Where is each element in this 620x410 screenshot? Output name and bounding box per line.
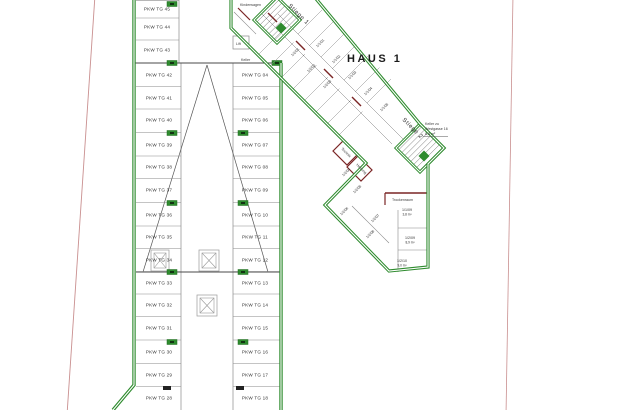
parking-stall-label: PKW TG 39 [146, 143, 172, 148]
parking-stall-label: PKW TG 12 [242, 258, 268, 263]
room-area-label: 3,8 m² [402, 212, 411, 216]
pillar-marker-core [241, 271, 245, 273]
kinderwagen-label: Kinderwagen [240, 3, 261, 7]
boundary-line-right [506, 0, 513, 410]
pillar-marker-dark [236, 386, 244, 390]
keller-label: Keller [241, 58, 251, 62]
pillar-marker-core [170, 271, 174, 273]
pillar-marker-core [241, 132, 245, 134]
parking-stall-label: PKW TG 43 [144, 48, 170, 53]
parking-stall-label: PKW TG 37 [146, 188, 172, 193]
keller-note-line3: 8,8 m² [425, 132, 436, 136]
parking-stall-label: PKW TG 31 [146, 326, 172, 331]
parking-stall-label: PKW TG 16 [242, 350, 268, 355]
room-label: 1/2/10 [397, 259, 407, 263]
room-area-label: 9,0 m² [397, 263, 406, 267]
pillar-marker-core [241, 202, 245, 204]
parking-stall-label: PKW TG 29 [146, 373, 172, 378]
parking-stall-label: PKW TG 38 [146, 165, 172, 170]
parking-stall-label: PKW TG 04 [242, 73, 268, 78]
room-label: 1/2/09 [405, 236, 415, 240]
room-label: 1/1/09 [402, 208, 412, 212]
plan-canvas: PKW TG 45PKW TG 44PKW TG 43PKW TG 42PKW … [0, 0, 620, 410]
pillar-marker-dark [163, 386, 171, 390]
parking-stall-label: PKW TG 17 [242, 373, 268, 378]
garage-wall-core [113, 0, 134, 410]
pillar-marker-core [275, 62, 279, 64]
parking-stall-label: PKW TG 18 [242, 396, 268, 401]
parking-stall-label: PKW TG 41 [146, 96, 172, 101]
parking-stall-label: PKW TG 32 [146, 303, 172, 308]
parking-stall-label: PKW TG 45 [144, 7, 170, 12]
parking-stall-label: PKW TG 08 [242, 165, 268, 170]
parking-stall-label: PKW TG 15 [242, 326, 268, 331]
pillar-marker-core [241, 341, 245, 343]
building-title: HAUS 1 [347, 53, 402, 65]
parking-stall-label: PKW TG 14 [242, 303, 268, 308]
pillar-marker-core [170, 62, 174, 64]
pillar-marker-core [170, 341, 174, 343]
parking-stall-label: PKW TG 30 [146, 350, 172, 355]
parking-stall-label: PKW TG 28 [146, 396, 172, 401]
trockenraum-label: Trockenraum [392, 198, 413, 202]
room-label: 1/2/04 [341, 167, 351, 177]
parking-stall-label: PKW TG 40 [146, 118, 172, 123]
parking-stall-label: PKW TG 36 [146, 213, 172, 218]
parking-stall-label: PKW TG 07 [242, 143, 268, 148]
room-area-label: 8,9 m² [405, 240, 414, 244]
keller-note-line1: Keller zu [425, 122, 439, 126]
garage-wall [113, 0, 134, 410]
parking-stall-label: PKW TG 13 [242, 281, 268, 286]
boundary-line-left [67, 0, 95, 410]
pillar-marker-core [170, 3, 174, 5]
parking-stall-label: PKW TG 44 [144, 25, 170, 30]
parking-stall-label: PKW TG 10 [242, 213, 268, 218]
keller-note-line2: Westgasse 16 [425, 127, 448, 131]
floor-plan: PKW TG 45PKW TG 44PKW TG 43PKW TG 42PKW … [0, 0, 620, 410]
pillar-marker-core [170, 132, 174, 134]
parking-stall-label: PKW TG 09 [242, 188, 268, 193]
parking-stall-label: PKW TG 35 [146, 235, 172, 240]
lift-label: Lift [236, 42, 241, 46]
parking-stall-label: PKW TG 06 [242, 118, 268, 123]
parking-stall-label: PKW TG 42 [146, 73, 172, 78]
parking-stall-label: PKW TG 05 [242, 96, 268, 101]
parking-stall-label: PKW TG 11 [242, 235, 268, 240]
parking-stall-label: PKW TG 33 [146, 281, 172, 286]
parking-stall-label: PKW TG 34 [146, 258, 172, 263]
pillar-marker-core [170, 202, 174, 204]
